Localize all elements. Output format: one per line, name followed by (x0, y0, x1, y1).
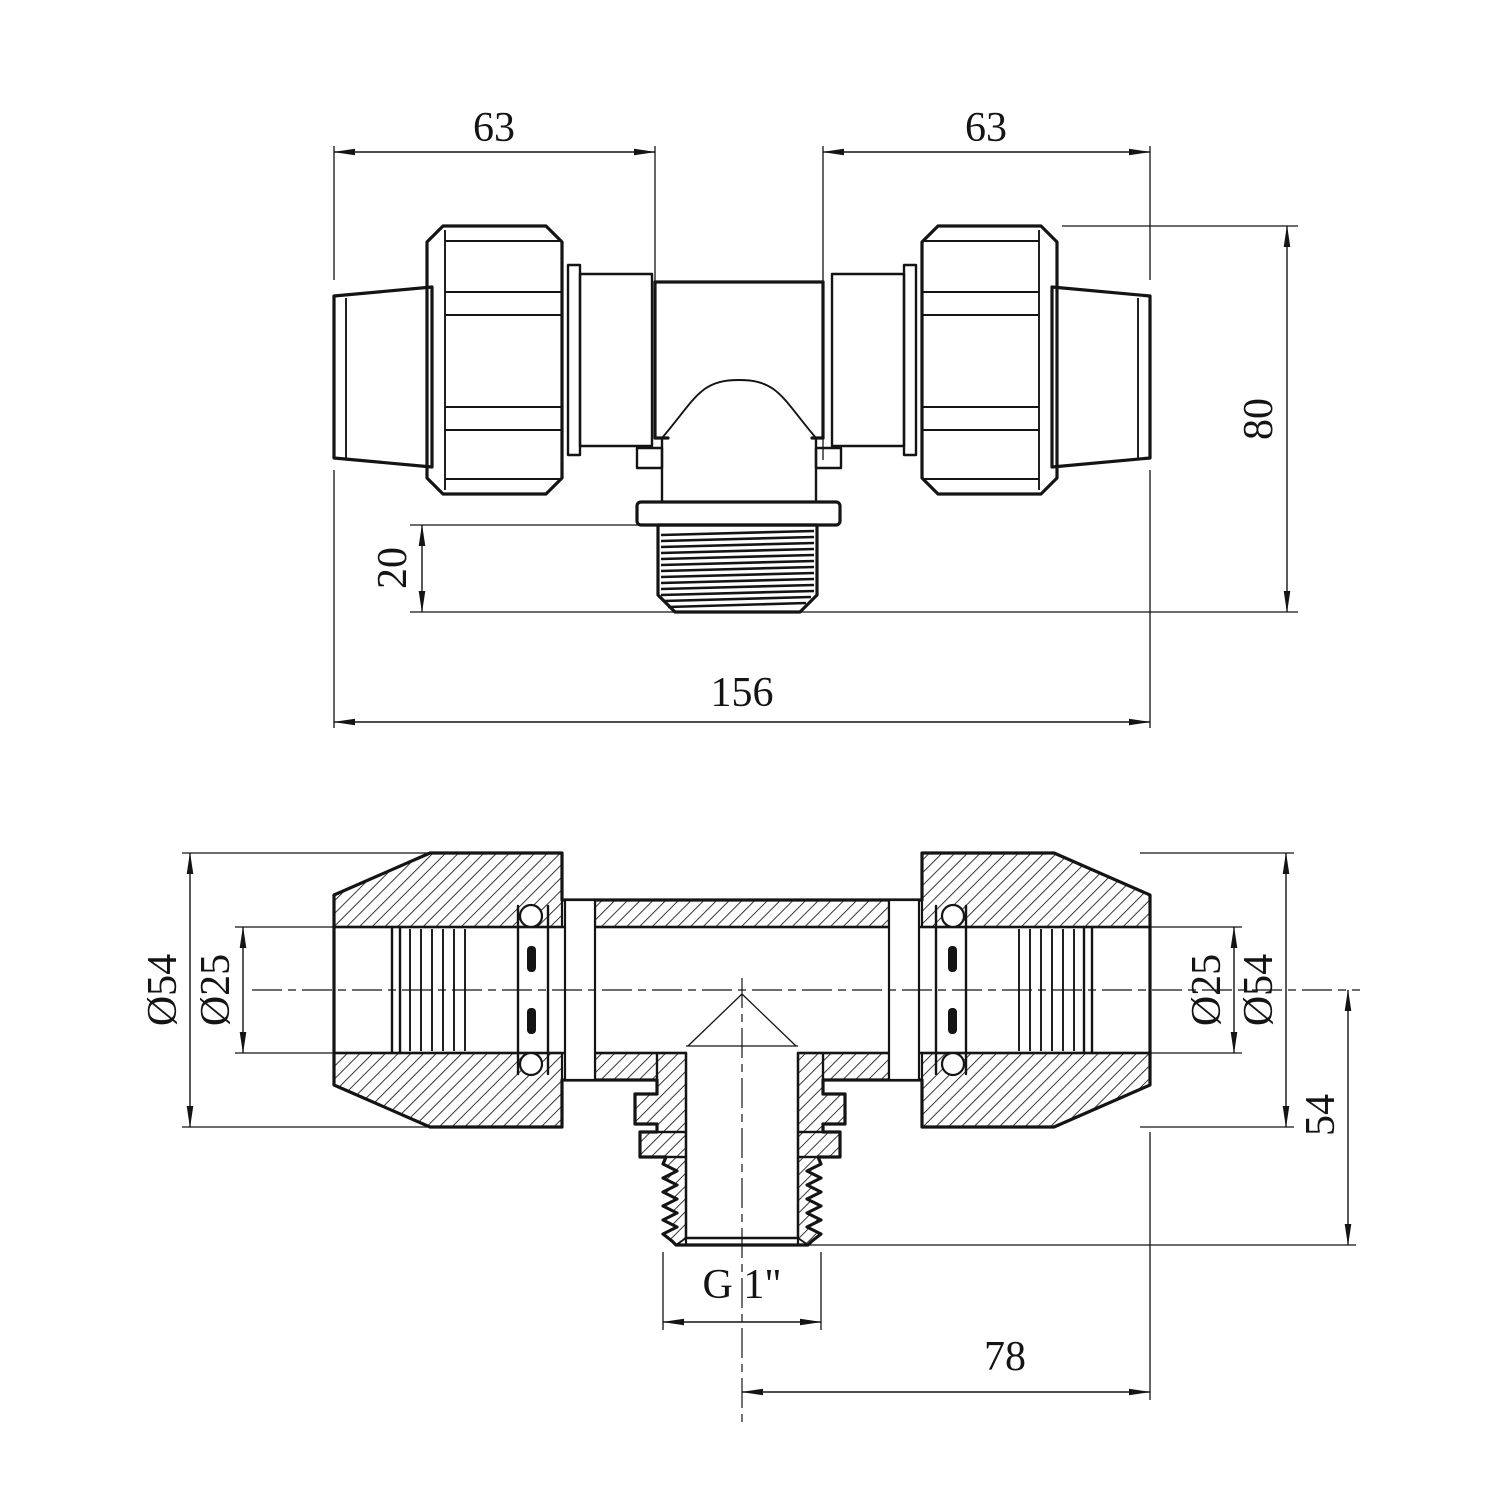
branch-dome-curve (662, 380, 816, 438)
neck-ear-right (816, 448, 841, 468)
cage-slot (948, 1008, 957, 1034)
dim-label-d54-right: Ø54 (1236, 954, 1282, 1026)
step-ring-left (580, 274, 652, 446)
thread-crest (661, 549, 814, 553)
cage-slot (527, 946, 536, 972)
o-ring-section (520, 905, 542, 927)
washer-right (904, 265, 916, 455)
dim-label-63-right: 63 (965, 105, 1007, 151)
male-thread-top-view (658, 525, 817, 612)
branch-flange (637, 502, 840, 525)
dim-label-63-left: 63 (473, 105, 515, 151)
dim-label-78: 78 (984, 1334, 1026, 1380)
thread-crest (661, 531, 814, 535)
neck-ear-left (637, 448, 662, 468)
cone-edge (742, 994, 796, 1046)
hatch-flange-left (640, 1132, 686, 1157)
thread-crest (661, 567, 814, 571)
tee-body (655, 282, 823, 438)
thread-crest (661, 579, 814, 583)
cone-edge (688, 994, 742, 1046)
o-ring-section (942, 905, 964, 927)
branch-neck (637, 438, 841, 502)
dim-20: 20 (370, 525, 655, 612)
dim-label-g1: G 1" (703, 1262, 782, 1308)
nut-left-ribs (445, 292, 562, 430)
thread-crest (661, 585, 814, 589)
dim-label-d25-left: Ø25 (193, 954, 239, 1026)
hatch-flange-right (798, 1132, 840, 1157)
technical-drawing-canvas: 63 63 80 20 156 (0, 0, 1500, 1500)
dim-label-20: 20 (370, 547, 416, 589)
compression-nut-left (427, 226, 562, 494)
step-ring-right (832, 274, 904, 446)
nut-right-ribs (922, 292, 1039, 430)
washer-left (568, 265, 580, 455)
thread-crest (661, 543, 814, 547)
thread-crest (663, 597, 811, 601)
hatch-body-bottom-left (595, 1053, 657, 1080)
thread-crest (661, 591, 814, 595)
compression-nut-right (922, 226, 1057, 494)
dim-label-d25-right: Ø25 (1184, 954, 1230, 1026)
dim-63-left: 63 (334, 105, 655, 380)
thread-crest (668, 603, 806, 607)
dim-label-54: 54 (1298, 1094, 1344, 1136)
top-view: 63 63 80 20 156 (334, 105, 1298, 728)
dim-label-156: 156 (711, 670, 774, 716)
dim-label-80: 80 (1236, 398, 1282, 440)
cage-slot (948, 946, 957, 972)
spigot-left (334, 287, 432, 467)
hatch-body-top (595, 900, 889, 927)
thread-crest (661, 573, 814, 577)
thread-crest (661, 537, 814, 541)
drawing-svg: 63 63 80 20 156 (0, 0, 1500, 1500)
hatch-body-bottom-right (823, 1053, 889, 1080)
thread-crest (661, 555, 814, 559)
section-view: Ø54 Ø25 Ø25 Ø54 54 (140, 853, 1360, 1428)
spigot-right (1052, 287, 1150, 467)
cage-slot (527, 1008, 536, 1034)
o-ring-section (942, 1053, 964, 1075)
dim-80: 80 (410, 226, 1298, 612)
thread-crest (661, 561, 814, 565)
o-ring-section (520, 1053, 542, 1075)
dim-label-d54-left: Ø54 (140, 954, 186, 1026)
